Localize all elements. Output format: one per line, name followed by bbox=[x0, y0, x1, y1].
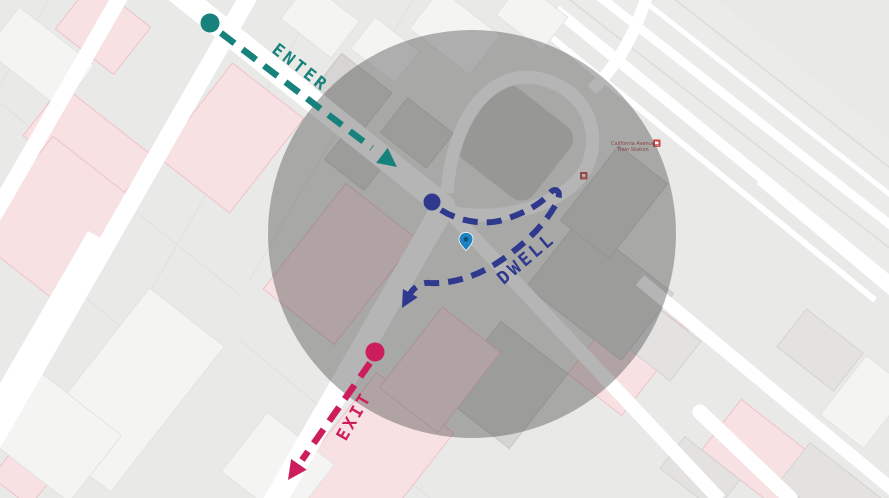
map-svg: California Avenue Train Station ENTER DW… bbox=[0, 0, 889, 498]
map-canvas[interactable]: California Avenue Train Station ENTER DW… bbox=[0, 0, 889, 498]
dwell-stop-dot bbox=[424, 194, 441, 211]
geofence-circle bbox=[268, 30, 676, 438]
exit-stop-dot bbox=[366, 343, 385, 362]
enter-origin-dot bbox=[201, 14, 220, 33]
